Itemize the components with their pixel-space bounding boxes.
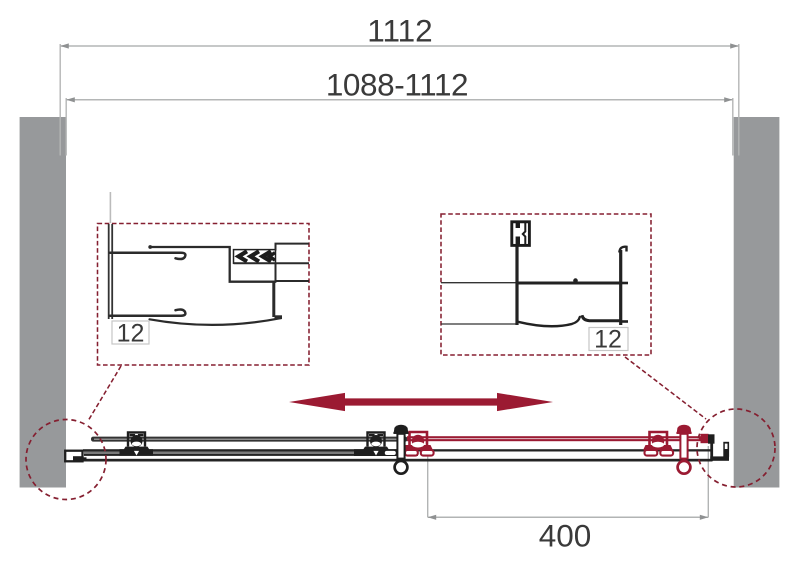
svg-text:1112: 1112 xyxy=(367,13,432,49)
svg-text:400: 400 xyxy=(539,518,592,554)
svg-text:12: 12 xyxy=(594,326,622,354)
svg-text:12: 12 xyxy=(117,320,145,348)
svg-text:1088-1112: 1088-1112 xyxy=(326,67,468,103)
